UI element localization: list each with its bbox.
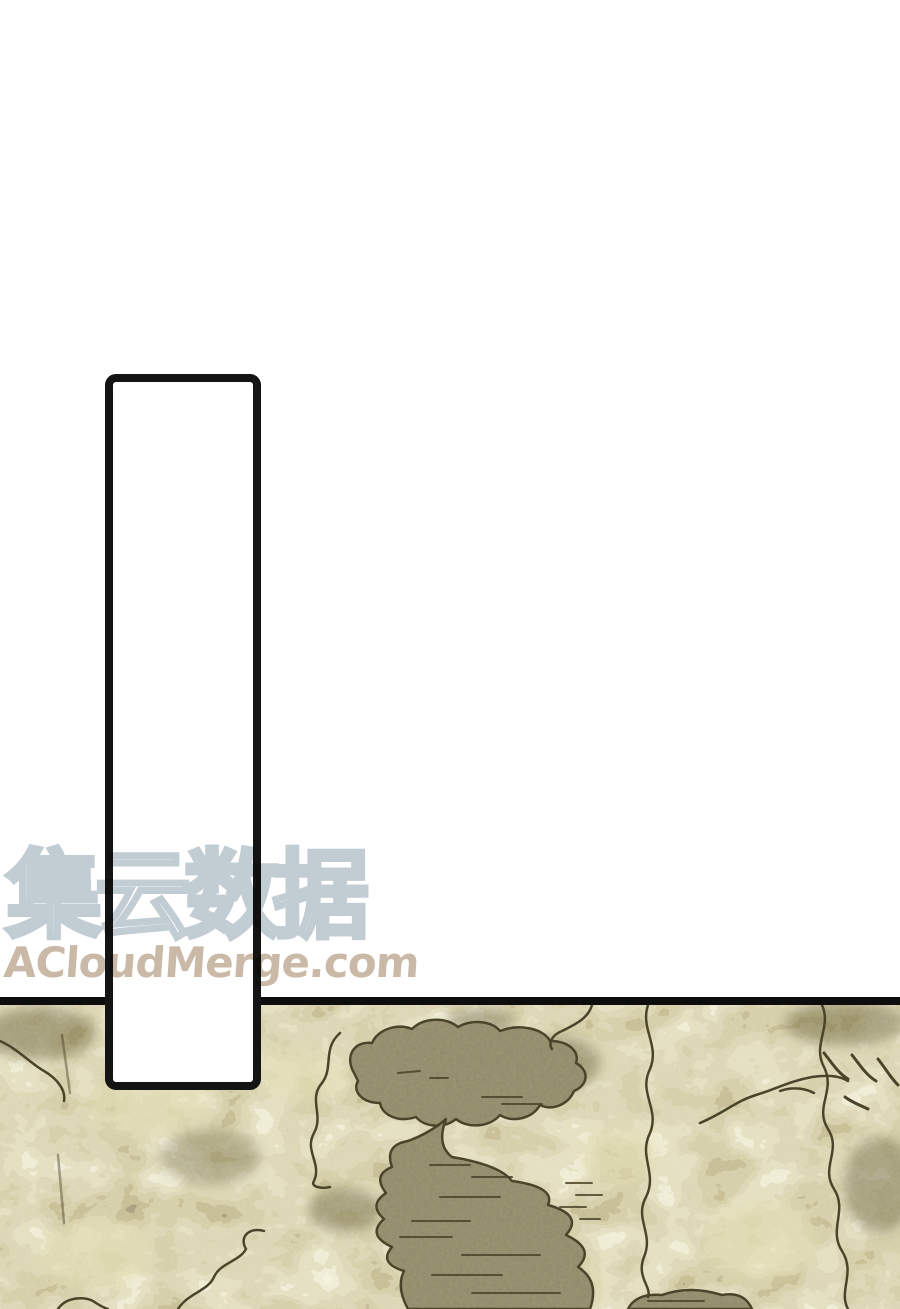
comic-page: 集云数据 ACloudMerge.com xyxy=(0,0,900,1309)
comic-panel xyxy=(105,374,261,1090)
